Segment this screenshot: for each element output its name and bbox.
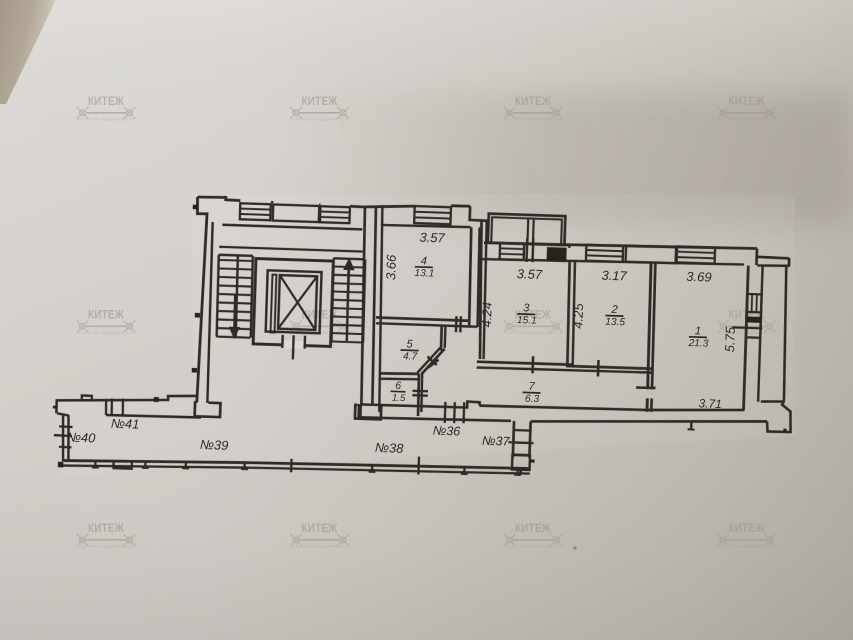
svg-text:АГЕНТСТВО НЕДВИЖИМОСТИ: АГЕНТСТВО НЕДВИЖИМОСТИ — [78, 331, 135, 335]
svg-text:№39: №39 — [200, 437, 229, 453]
svg-text:3.57: 3.57 — [517, 266, 544, 282]
svg-text:5.75: 5.75 — [722, 326, 738, 353]
svg-text:№38: №38 — [375, 440, 405, 456]
svg-text:5: 5 — [406, 338, 413, 350]
svg-text:3.57: 3.57 — [419, 230, 446, 246]
svg-text:АГЕНТСТВО НЕДВИЖИМОСТИ: АГЕНТСТВО НЕДВИЖИМОСТИ — [505, 544, 562, 548]
svg-text:КИТЕЖ: КИТЕЖ — [515, 95, 551, 108]
svg-text:13.1: 13.1 — [414, 268, 434, 280]
svg-text:7: 7 — [528, 381, 535, 393]
svg-text:3.66: 3.66 — [383, 254, 399, 281]
svg-text:13.5: 13.5 — [605, 317, 626, 329]
svg-text:№37: №37 — [482, 434, 511, 449]
svg-text:№36: №36 — [433, 424, 461, 439]
svg-text:3.17: 3.17 — [601, 268, 628, 284]
svg-text:КИТЕЖ: КИТЕЖ — [301, 95, 337, 108]
svg-text:АГЕНТСТВО НЕДВИЖИМОСТИ: АГЕНТСТВО НЕДВИЖИМОСТИ — [291, 117, 348, 121]
svg-text:КИТЕЖ: КИТЕЖ — [88, 309, 124, 322]
svg-text:1: 1 — [695, 325, 702, 337]
svg-text:1.5: 1.5 — [392, 393, 406, 404]
svg-text:4: 4 — [421, 255, 428, 267]
svg-text:4.25: 4.25 — [570, 302, 586, 329]
svg-text:КИТЕЖ: КИТЕЖ — [728, 522, 764, 535]
svg-text:21.3: 21.3 — [687, 338, 709, 350]
svg-text:6.3: 6.3 — [525, 394, 540, 405]
svg-text:АГЕНТСТВО НЕДВИЖИМОСТИ: АГЕНТСТВО НЕДВИЖИМОСТИ — [78, 544, 135, 548]
svg-text:КИТЕЖ: КИТЕЖ — [301, 522, 337, 535]
svg-text:4.24: 4.24 — [479, 302, 495, 328]
svg-text:КИТЕЖ: КИТЕЖ — [88, 95, 124, 108]
svg-text:3.69: 3.69 — [686, 269, 712, 285]
svg-text:АГЕНТСТВО НЕДВИЖИМОСТИ: АГЕНТСТВО НЕДВИЖИМОСТИ — [78, 117, 135, 121]
svg-text:КИТЕЖ: КИТЕЖ — [88, 522, 124, 535]
svg-text:6: 6 — [395, 380, 401, 392]
svg-text:2: 2 — [610, 304, 618, 316]
svg-text:3: 3 — [523, 302, 530, 314]
svg-text:АГЕНТСТВО НЕДВИЖИМОСТИ: АГЕНТСТВО НЕДВИЖИМОСТИ — [718, 117, 775, 121]
svg-text:АГЕНТСТВО НЕДВИЖИМОСТИ: АГЕНТСТВО НЕДВИЖИМОСТИ — [505, 117, 562, 121]
svg-text:4.7: 4.7 — [403, 351, 418, 362]
svg-text:КИТЕЖ: КИТЕЖ — [515, 522, 551, 535]
svg-text:15.1: 15.1 — [517, 315, 537, 327]
svg-text:КИТЕЖ: КИТЕЖ — [728, 95, 764, 108]
svg-text:№41: №41 — [111, 416, 140, 432]
svg-text:3.71: 3.71 — [698, 396, 722, 411]
svg-text:АГЕНТСТВО НЕДВИЖИМОСТИ: АГЕНТСТВО НЕДВИЖИМОСТИ — [291, 544, 348, 548]
svg-text:№40: №40 — [67, 430, 97, 446]
svg-text:АГЕНТСТВО НЕДВИЖИМОСТИ: АГЕНТСТВО НЕДВИЖИМОСТИ — [718, 544, 775, 548]
